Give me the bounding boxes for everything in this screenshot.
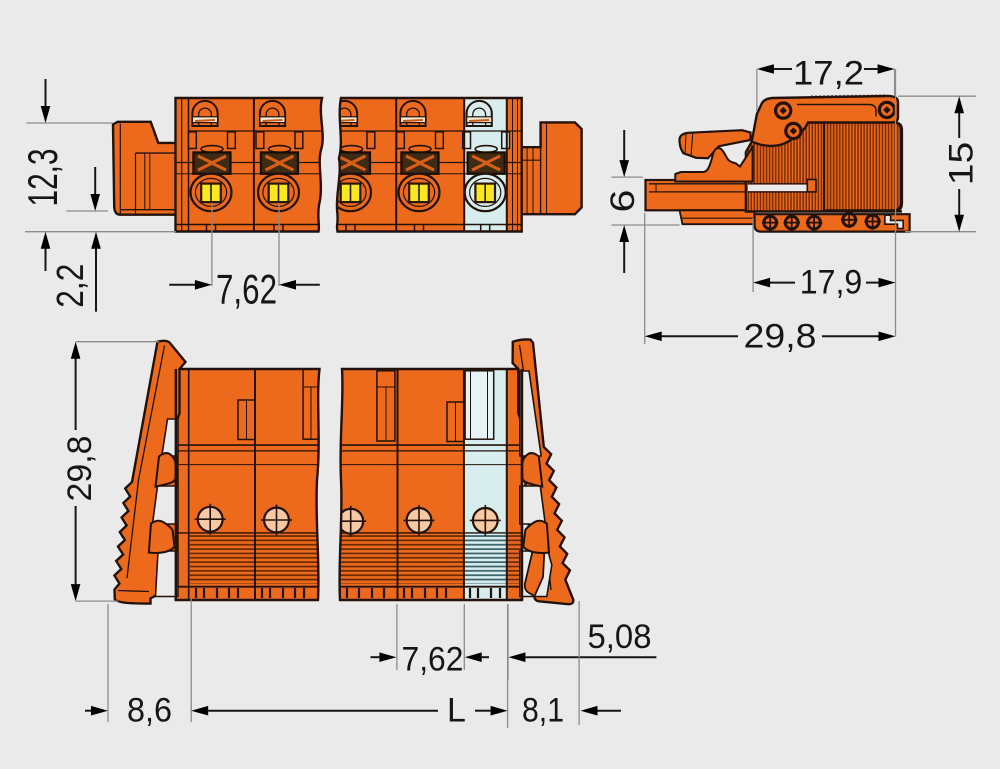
svg-text:7,62: 7,62 [216, 266, 277, 313]
svg-text:8,1: 8,1 [522, 692, 564, 730]
svg-text:12,3: 12,3 [19, 149, 66, 207]
svg-text:2,2: 2,2 [50, 264, 92, 308]
svg-text:L: L [447, 692, 466, 730]
svg-text:15: 15 [943, 142, 981, 186]
svg-text:29,8: 29,8 [744, 317, 817, 355]
svg-text:7,62: 7,62 [402, 641, 464, 679]
svg-text:17,2: 17,2 [793, 55, 864, 93]
svg-text:8,6: 8,6 [127, 692, 172, 730]
svg-text:6: 6 [604, 190, 642, 213]
svg-text:5,08: 5,08 [588, 618, 652, 656]
svg-text:17,9: 17,9 [800, 264, 863, 302]
svg-text:29,8: 29,8 [61, 436, 99, 502]
